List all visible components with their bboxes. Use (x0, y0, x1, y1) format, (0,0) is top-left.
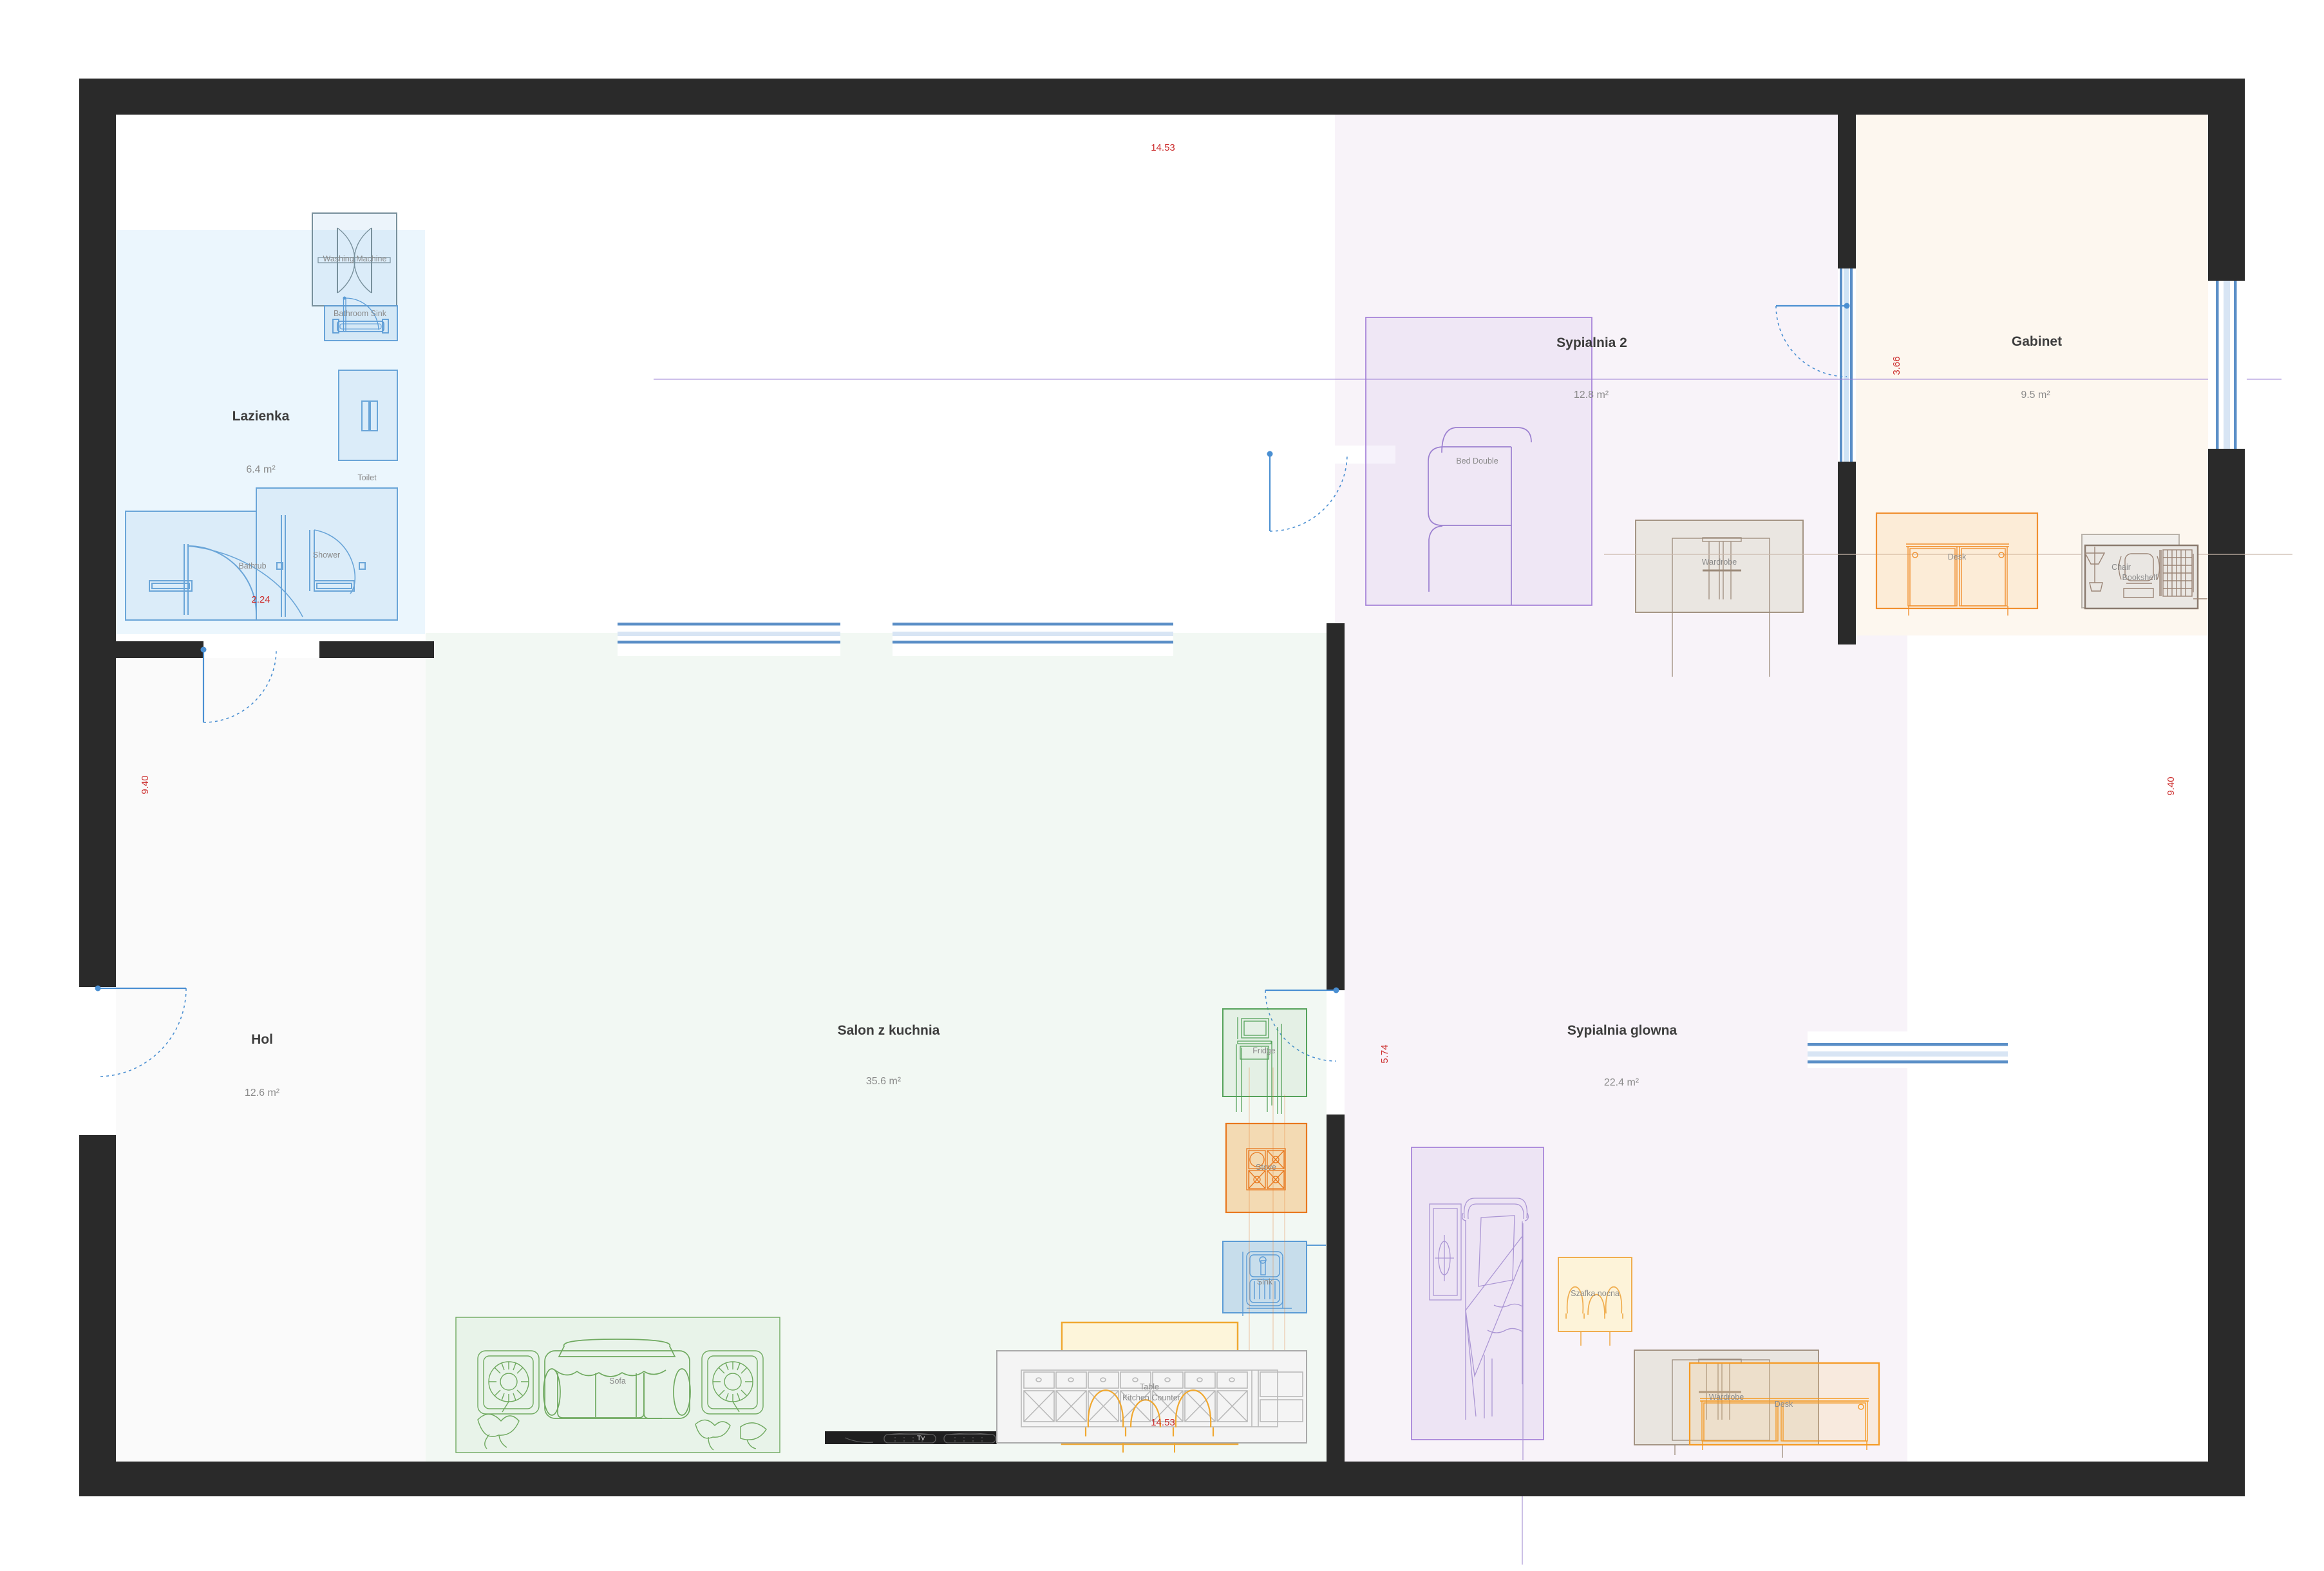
svg-text:Sypialnia 2: Sypialnia 2 (1556, 335, 1627, 350)
svg-text:3.66: 3.66 (1891, 356, 1902, 375)
svg-text:9.40: 9.40 (140, 775, 151, 794)
svg-text:Bathtub: Bathtub (238, 561, 266, 570)
svg-text:Sink: Sink (1257, 1277, 1273, 1286)
svg-text:Fridge: Fridge (1252, 1046, 1275, 1055)
svg-text:Bookshelf: Bookshelf (2122, 573, 2158, 582)
svg-text:Toilet: Toilet (357, 473, 377, 482)
svg-text:Wardrobe: Wardrobe (1702, 558, 1737, 567)
svg-text:12.8 m²: 12.8 m² (1574, 390, 1609, 400)
svg-text:9.40: 9.40 (2166, 776, 2177, 795)
svg-text:Chair: Chair (2111, 563, 2131, 572)
svg-text:Bed Double: Bed Double (1456, 456, 1498, 466)
svg-text:Desk: Desk (1775, 1400, 1793, 1409)
svg-text:22.4 m²: 22.4 m² (1604, 1077, 1639, 1088)
svg-text:Table: Table (1140, 1382, 1159, 1391)
svg-text:12.6 m²: 12.6 m² (245, 1087, 280, 1098)
svg-text:Bathroom Sink: Bathroom Sink (334, 309, 387, 318)
svg-text:2.24: 2.24 (251, 594, 270, 605)
svg-text:9.5 m²: 9.5 m² (2021, 390, 2050, 400)
svg-text:Sofa: Sofa (609, 1377, 626, 1386)
svg-text:Sypialnia glowna: Sypialnia glowna (1567, 1023, 1677, 1038)
svg-text:Lazienka: Lazienka (232, 409, 290, 424)
svg-text:14.53: 14.53 (1151, 1417, 1175, 1428)
svg-text:Desk: Desk (1948, 552, 1967, 561)
svg-text:35.6 m²: 35.6 m² (866, 1076, 902, 1087)
svg-text:Hol: Hol (251, 1032, 273, 1047)
svg-text:Shower: Shower (313, 550, 340, 560)
svg-text:6.4 m²: 6.4 m² (246, 464, 276, 475)
svg-text:Kitchen Counter: Kitchen Counter (1122, 1393, 1180, 1402)
svg-text:5.74: 5.74 (1379, 1044, 1390, 1063)
svg-text:Szafka nocna: Szafka nocna (1571, 1289, 1620, 1298)
svg-text:Salon z kuchnia: Salon z kuchnia (838, 1023, 940, 1038)
svg-text:Gabinet: Gabinet (2012, 334, 2062, 349)
svg-text:Wardrobe: Wardrobe (1709, 1393, 1744, 1402)
svg-text:Tv: Tv (917, 1435, 925, 1442)
svg-text:Stove: Stove (1256, 1163, 1276, 1172)
svg-text:14.53: 14.53 (1151, 142, 1175, 153)
svg-text:Washing Machine: Washing Machine (323, 254, 387, 263)
